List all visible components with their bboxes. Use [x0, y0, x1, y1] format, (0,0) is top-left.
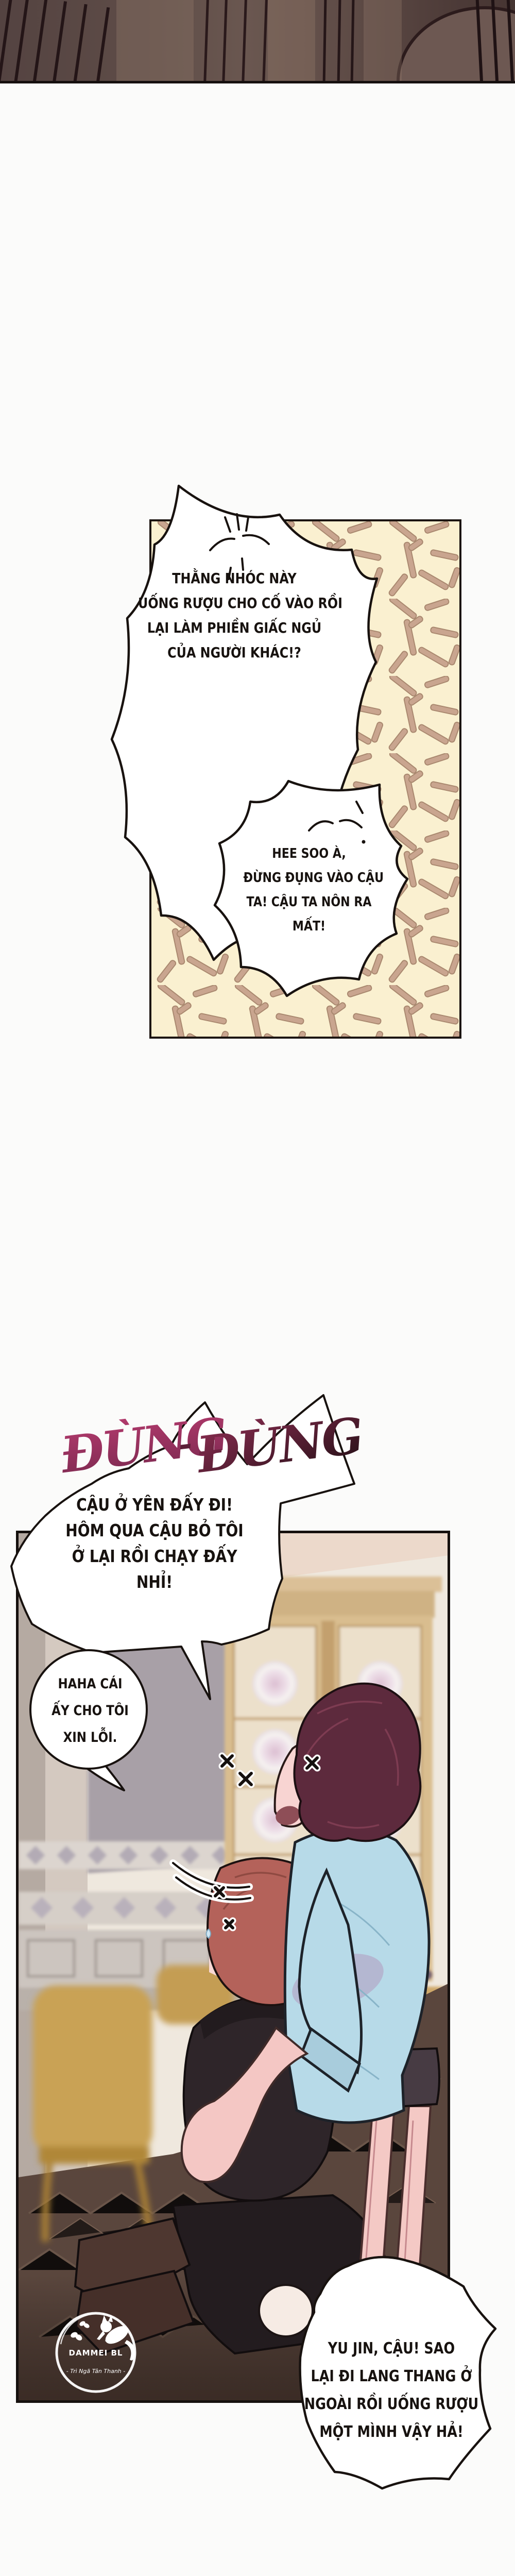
bubble-line: LẠI LÀM PHIỀN GIẤC NGỦ: [138, 616, 331, 640]
bubble-angry-text: THẰNG NHÓC NÀY UỐNG RƯỢU CHO CỐ VÀO RỒI …: [121, 566, 348, 665]
watermark-title: DAMMEI BL: [69, 2348, 123, 2358]
speed-streaks-mid2: [322, 0, 327, 83]
bubble-line: HÔM QUA CẬU BỎ TÔI: [49, 1518, 260, 1544]
bubble-haha-text: HAHA CÁI ẤY CHO TÔI XIN LỖI.: [23, 1671, 157, 1751]
bubble-line: HAHA CÁI: [33, 1671, 147, 1698]
bubble-stay-text: CẬU Ở YÊN ĐẤY ĐI! HÔM QUA CẬU BỎ TÔI Ở L…: [31, 1492, 278, 1595]
speed-streaks-left: [0, 0, 13, 83]
bubble-line: CỦA NGƯỜI KHÁC!?: [138, 640, 331, 665]
light-column: [268, 0, 315, 81]
bubble-line: ẤY CHO TÔI: [33, 1698, 147, 1724]
bubble-line: NGOÀI RỒI UỐNG RƯỢU: [304, 2391, 479, 2418]
bubble-yujin-text: YU JIN, CẬU! SAO LẠI ĐI LANG THANG Ở NGO…: [288, 2335, 494, 2446]
bubble-line: MẤT!: [244, 914, 375, 939]
bubble-line: XIN LỖI.: [33, 1724, 147, 1751]
bubble-heesoo-text: HEE SOO À, ĐỪNG ĐỤNG VÀO CẬU TA! CẬU TA …: [232, 842, 386, 939]
panel-top-art: [0, 0, 515, 83]
bubble-line: UỐNG RƯỢU CHO CỐ VÀO RỒI: [138, 591, 331, 616]
bubble-line: LẠI ĐI LANG THANG Ở: [304, 2363, 479, 2391]
bubble-line: TA! CẬU TA NÔN RA: [244, 890, 375, 914]
bubble-line: YU JIN, CẬU! SAO: [304, 2335, 479, 2363]
blurred-round-object: [397, 6, 515, 83]
bubble-line: ĐỪNG ĐỤNG VÀO CẬU: [244, 866, 375, 890]
sweat-drop: [207, 1929, 211, 1938]
bubble-line: Ở LẠI RỒI CHẠY ĐẤY: [49, 1544, 260, 1569]
bubble-line: HEE SOO À,: [244, 842, 375, 866]
bubble-line: MỘT MÌNH VẬY HẢ!: [304, 2418, 479, 2446]
light-column: [116, 0, 194, 81]
light-column: [364, 0, 402, 81]
watermark-subtitle: - Trì Ngã Tân Thanh -: [66, 2368, 125, 2375]
watermark-logo: DAMMEI BL - Trì Ngã Tân Thanh -: [51, 2308, 144, 2401]
bubble-line: THẰNG NHÓC NÀY: [138, 566, 331, 591]
speed-streaks-mid: [203, 0, 210, 83]
bubble-line: NHỈ!: [49, 1569, 260, 1595]
comic-page: THẰNG NHÓC NÀY UỐNG RƯỢU CHO CỐ VÀO RỒI …: [0, 0, 515, 2576]
sfx-dung-dung: ĐÙNG - ĐÙNG: [41, 1370, 371, 1504]
